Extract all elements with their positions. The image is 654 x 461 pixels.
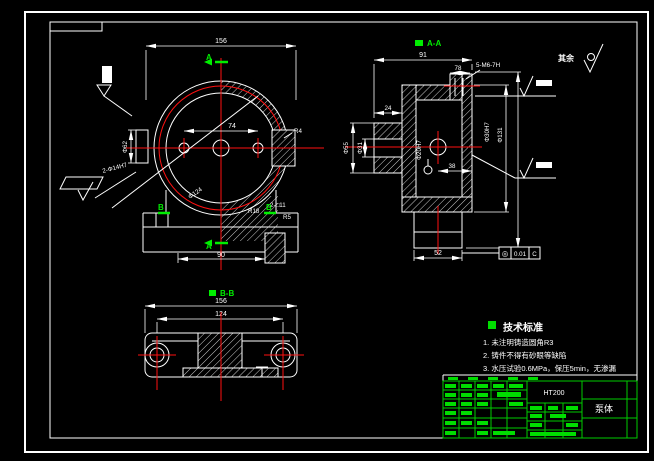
section-view-bb: B-B 156 124 [138, 289, 304, 401]
dim-38: 38 [449, 163, 456, 170]
tech-requirements: 技术标准 1. 未注明铸造圆角R3 2. 铸件不得有砂眼等缺陷 3. 水压试验0… [483, 321, 616, 373]
dim-24: 24 [385, 105, 392, 112]
surface-note-text: 其余 [558, 53, 575, 63]
bullet-icon [488, 321, 496, 329]
label-bolt-holes: 2-Φ14H7 [102, 161, 129, 174]
dim-phi31: Φ31 [357, 142, 364, 154]
label-slot: 2-□11 [270, 202, 286, 209]
roughness-flag-icon [97, 66, 132, 116]
surface-note: 其余 [558, 44, 603, 72]
roughness-icon [584, 44, 603, 72]
dim-base-overall: 156 [215, 298, 227, 305]
dim-base-width: 90 [217, 252, 225, 259]
dim-overall-width: 156 [215, 38, 227, 45]
dim-phi30h7: Φ30H7 [484, 122, 491, 142]
dim-hole-spacing: 74 [228, 123, 236, 130]
cad-drawing-canvas: 156 74 90 Φ62 2-Φ14H7 Φ124 R4 R18 2-□11 … [0, 0, 654, 461]
label-fillet-r4: R4 [294, 128, 302, 135]
roughness-icon [475, 76, 556, 96]
dim-step: 78 [455, 65, 462, 72]
frame-corner-box [50, 22, 102, 31]
title-block: HT200 泵体 [443, 375, 637, 438]
tolerance-frame: ◎ 0.01 C [462, 247, 540, 259]
tolerance-value: 0.01 [514, 251, 527, 258]
label-tapped-holes: 5-M6-7H [476, 62, 500, 69]
label-bore: Φ20H7 [416, 140, 423, 160]
front-view: 156 74 90 Φ62 2-Φ14H7 Φ124 R4 R18 2-□11 … [60, 38, 324, 270]
cad-drawing: 156 74 90 Φ62 2-Φ14H7 Φ124 R4 R18 2-□11 … [0, 0, 654, 461]
label-fillet-r18: R18 [248, 208, 260, 215]
svg-text:B: B [266, 203, 272, 212]
sheet-frame [25, 12, 648, 452]
dim-phi131: Φ131 [497, 127, 504, 143]
section-aa-title: A-A [415, 39, 441, 48]
tech-item: 2. 铸件不得有砂眼等缺陷 [483, 350, 566, 360]
section-marker-a-bottom: A [204, 240, 228, 252]
dim-foot-width: 52 [434, 250, 442, 257]
section-view-aa: A-A 91 78 5-M6-7H Φ55 [343, 39, 556, 261]
roughness-flag-icon [60, 172, 136, 200]
material-cell: HT200 [543, 390, 564, 397]
tech-item: 1. 未注明铸造圆角R3 [483, 337, 553, 347]
tech-title: 技术标准 [503, 321, 543, 334]
section-bb-title: B-B [209, 289, 234, 298]
svg-text:B-B: B-B [220, 289, 234, 298]
section-marker-a-top: A [204, 53, 228, 66]
part-name-cell: 泵体 [595, 403, 613, 414]
svg-text:A-A: A-A [427, 39, 441, 48]
label-fillet-r5: R5 [283, 214, 291, 221]
dim-depth: 91 [419, 52, 427, 59]
dim-boss-dia: Φ62 [122, 141, 129, 153]
foot-section [265, 233, 285, 263]
tech-item: 3. 水压试验0.6MPa，保压5min，无渗漏 [483, 363, 616, 373]
roughness-icon [472, 155, 556, 178]
tolerance-symbol: ◎ [502, 249, 509, 258]
section-marker-b-left: B [158, 203, 170, 213]
dim-phi55: Φ55 [343, 142, 350, 154]
side-boss-left [136, 130, 148, 163]
svg-text:B: B [158, 203, 164, 212]
tolerance-datum: C [532, 251, 537, 258]
